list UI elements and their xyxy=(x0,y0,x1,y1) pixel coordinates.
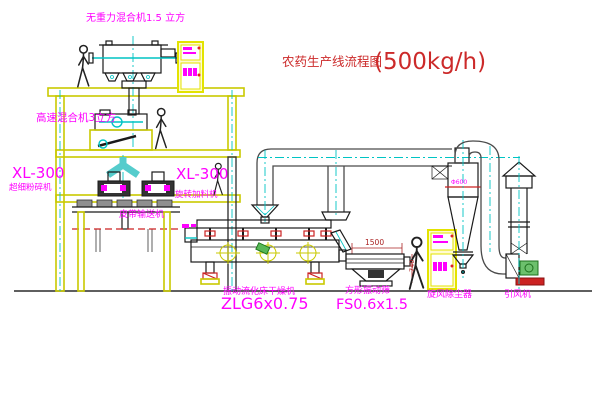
dryer-spring-mounts xyxy=(205,228,331,240)
label-pulverizer-name: 超细粉碎机 xyxy=(9,182,52,193)
worker-top-floor xyxy=(78,45,89,86)
label-cyclone-name: 旋风除尘器 xyxy=(427,288,472,300)
control-cabinet-2 xyxy=(428,230,456,289)
air-duct-system xyxy=(252,149,520,223)
diagram-title-capacity: (500kg/h) xyxy=(374,49,486,75)
label-rotary-feeder-name: 旋转加料机 xyxy=(175,189,218,200)
label-fan-name: 引风机 xyxy=(504,288,531,300)
diagram-svg: 无重力混合机1.5 立方 农药生产线流程图 (500kg/h) 高速混合机3立方… xyxy=(0,0,600,403)
label-sieve-model: FS0.6x1.5 xyxy=(336,297,408,313)
control-cabinet-1 xyxy=(178,42,203,92)
dryer-legs xyxy=(201,262,324,284)
label-rotary-feeder-model: XL-300 xyxy=(176,165,228,183)
fluid-bed-dryer-machine xyxy=(182,220,339,284)
dimension-sieve-length: 1500 xyxy=(365,238,384,247)
process-flow-diagram: 无重力混合机1.5 立方 农药生产线流程图 (500kg/h) 高速混合机3立方… xyxy=(0,0,600,403)
label-high-speed-mixer: 高速混合机3立方 xyxy=(36,111,116,124)
label-pulverizer-model: XL-300 xyxy=(12,164,64,182)
diagram-title: 农药生产线流程图 xyxy=(282,54,382,69)
label-gravity-mixer: 无重力混合机1.5 立方 xyxy=(86,11,185,24)
label-cyclone-diameter: Φ600 xyxy=(451,179,467,186)
label-belt-conveyor: 皮带输送机 xyxy=(119,208,164,220)
dimension-sieve-height: 740 xyxy=(408,260,416,272)
fan-and-stack xyxy=(503,156,544,290)
worker-second-floor xyxy=(156,108,167,148)
gravity-mixer-machine xyxy=(89,41,180,114)
label-sieve-name: 方形振动筛 xyxy=(345,284,390,296)
label-dryer-model: ZLG6x0.75 xyxy=(221,294,309,313)
